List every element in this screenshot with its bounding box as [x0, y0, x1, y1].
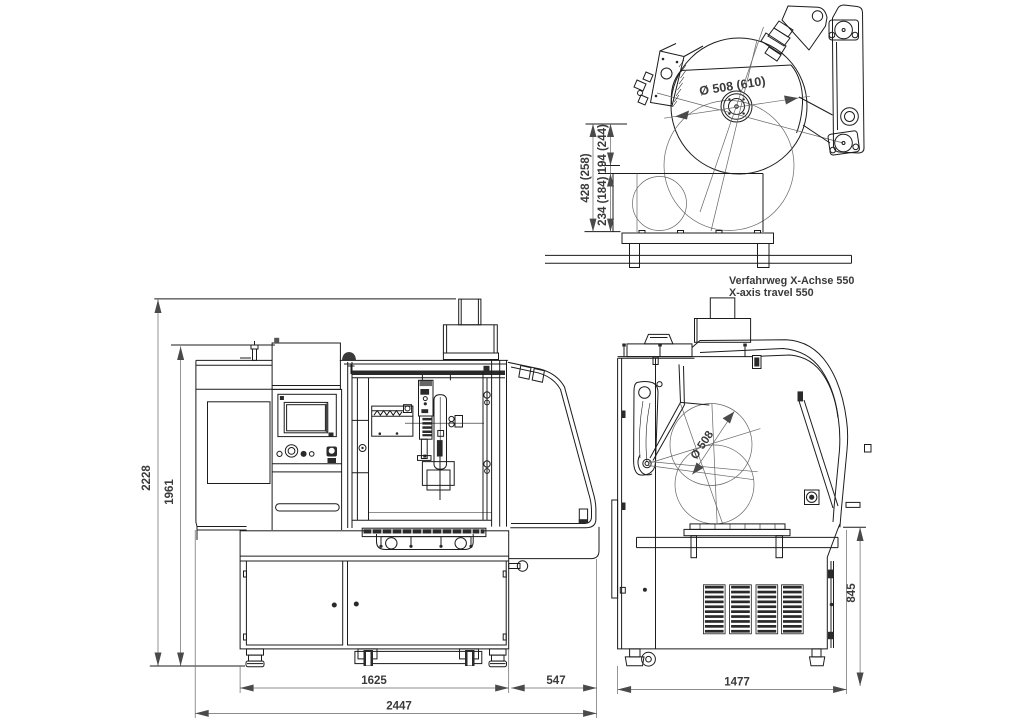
svg-text:1961: 1961: [164, 479, 176, 505]
svg-text:1477: 1477: [724, 677, 750, 689]
svg-text:1625: 1625: [361, 675, 387, 687]
svg-text:2447: 2447: [386, 701, 412, 713]
svg-text:428 (258): 428 (258): [580, 153, 592, 202]
svg-text:Verfahrweg X-Achse 550: Verfahrweg X-Achse 550: [729, 275, 854, 287]
svg-text:X-axis travel 550: X-axis travel 550: [729, 287, 814, 299]
svg-text:2228: 2228: [141, 465, 153, 491]
svg-text:547: 547: [546, 675, 565, 687]
svg-text:845: 845: [846, 583, 858, 603]
svg-text:234 (184) 194 (244): 234 (184) 194 (244): [597, 124, 609, 226]
